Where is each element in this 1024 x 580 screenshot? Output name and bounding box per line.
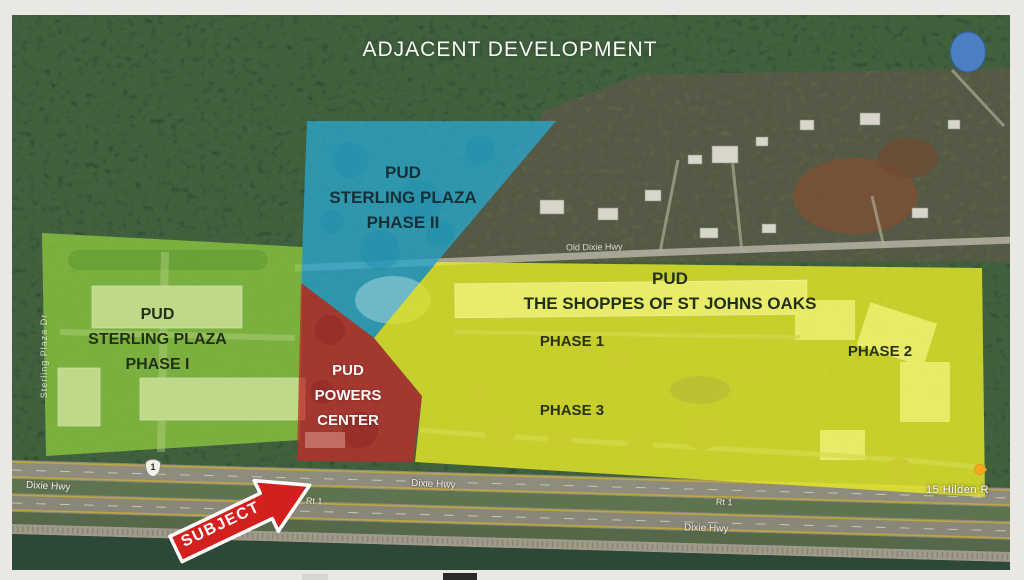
zone-phase2-line1: PUD <box>290 160 516 185</box>
road-label-old-dixie-hwy: Old Dixie Hwy <box>566 242 623 253</box>
phase1-label: PHASE 1 <box>530 333 614 350</box>
phase2-label: PHASE 2 <box>838 343 922 360</box>
road-label-dixie-hwy-left: Dixie Hwy <box>26 480 71 493</box>
zone-powers-line1: PUD <box>295 358 401 383</box>
zone-shoppes-line2: THE SHOPPES OF ST JOHNS OAKS <box>450 291 890 316</box>
timestamp-chip-light <box>302 574 328 580</box>
road-label-sterling-plaza-dr: Sterling Plaza Dr <box>39 306 49 406</box>
zone-shoppes-line1: PUD <box>450 266 890 291</box>
address-label-15-hilden: 15 Hilden R <box>926 484 989 496</box>
zone-phase1-line2: STERLING PLAZA <box>55 327 260 352</box>
zone-phase1-line1: PUD <box>55 302 260 327</box>
road-label-dixie-hwy-mid: Dixie Hwy <box>411 478 456 491</box>
zone-label-shoppes: PUD THE SHOPPES OF ST JOHNS OAKS <box>450 266 890 316</box>
timestamp-chip-dark <box>443 573 477 580</box>
aerial-map: ADJACENT DEVELOPMENT PUD STERLING PLAZA … <box>12 15 1010 570</box>
road-label-dixie-hwy-right: Dixie Hwy <box>684 522 729 535</box>
slide-canvas: ADJACENT DEVELOPMENT PUD STERLING PLAZA … <box>0 0 1024 580</box>
zone-label-powers-center: PUD POWERS CENTER <box>295 358 401 433</box>
phase3-label: PHASE 3 <box>530 402 614 419</box>
zone-label-sterling-plaza-phase2: PUD STERLING PLAZA PHASE II <box>290 160 516 235</box>
road-label-rt1-right: Rt 1 <box>716 497 733 508</box>
zone-phase1-line3: PHASE I <box>55 352 260 377</box>
blue-highlight-dot <box>951 32 986 72</box>
zone-phase2-line3: PHASE II <box>290 210 516 235</box>
page-title: ADJACENT DEVELOPMENT <box>250 38 770 62</box>
road-label-rt1-mid: Rt 1 <box>306 496 323 507</box>
zone-powers-line3: CENTER <box>295 408 401 433</box>
zone-phase2-line2: STERLING PLAZA <box>290 185 516 210</box>
zone-powers-line2: POWERS <box>295 383 401 408</box>
zone-label-sterling-plaza-phase1: PUD STERLING PLAZA PHASE I <box>55 302 260 377</box>
